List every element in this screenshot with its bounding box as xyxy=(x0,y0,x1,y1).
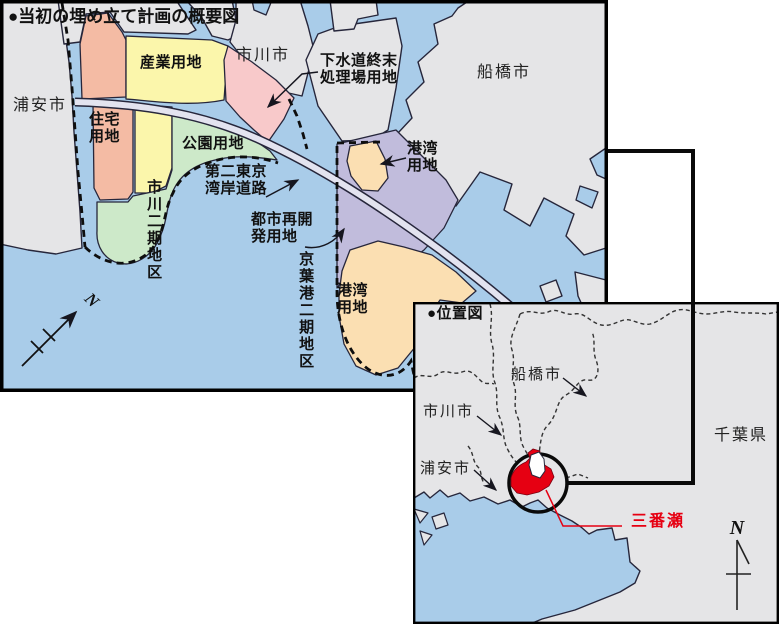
residential-zone-lower xyxy=(93,104,133,200)
industrial-zone xyxy=(126,36,228,103)
figure-canvas: N xyxy=(0,0,779,624)
location-map: N xyxy=(413,302,779,624)
industrial-zone-lower xyxy=(135,104,172,193)
location-compass-n: N xyxy=(729,517,746,539)
